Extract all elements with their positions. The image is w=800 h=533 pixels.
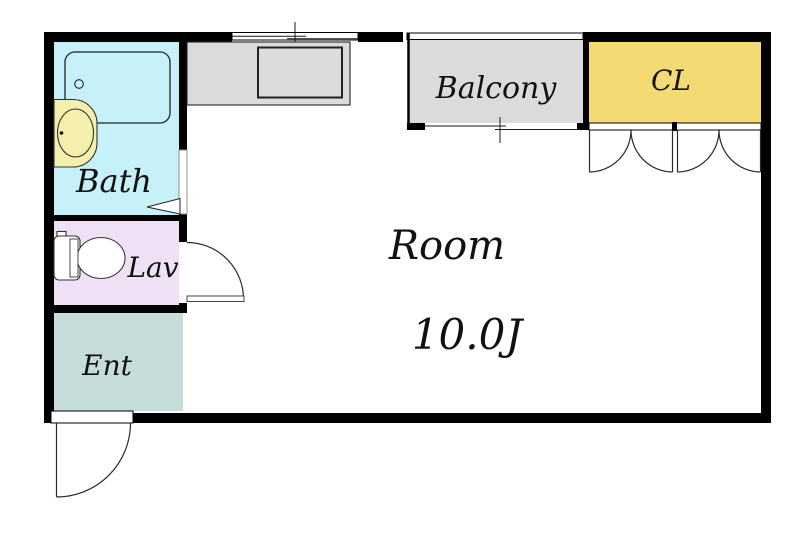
ent-label: Ent bbox=[81, 349, 132, 382]
wall-right bbox=[761, 32, 771, 423]
lav-bottom-wall bbox=[44, 305, 187, 313]
wall-left bbox=[44, 32, 54, 423]
balcony-sill-left-seg bbox=[407, 123, 425, 130]
lav-door-leaf bbox=[187, 296, 244, 302]
balcony-sill-right-seg bbox=[577, 123, 583, 130]
lav-door bbox=[179, 242, 244, 303]
floor-plan: Bath Lav Ent Balcony CL Room 10.0J bbox=[0, 0, 800, 533]
closet-label: CL bbox=[651, 64, 691, 97]
lav-door-arc bbox=[187, 243, 244, 300]
closet-door-arc-1 bbox=[590, 130, 632, 172]
entrance-door-frame bbox=[51, 411, 133, 423]
bath-label: Bath bbox=[75, 162, 152, 200]
entrance-door-arc bbox=[57, 423, 131, 497]
toilet-bowl bbox=[77, 238, 125, 279]
bath-right-wall-upper bbox=[179, 42, 187, 150]
closet-left-wall bbox=[583, 32, 589, 130]
closet-door-arc-4 bbox=[719, 130, 761, 172]
wall-bottom-left-segment bbox=[44, 413, 51, 423]
wall-top-left-segment bbox=[44, 32, 232, 42]
wall-bottom-main-segment bbox=[133, 413, 771, 423]
balcony-top-rail bbox=[407, 33, 583, 40]
bathtub-drain bbox=[75, 80, 84, 89]
entrance-door bbox=[51, 411, 133, 497]
closet-door-arc-2 bbox=[631, 130, 673, 172]
wall-top-mid-segment bbox=[358, 32, 403, 42]
closet-doors bbox=[589, 122, 761, 172]
balcony-label: Balcony bbox=[435, 71, 558, 106]
kitchen-counter-sink-icon bbox=[187, 42, 350, 105]
lav-door-opening bbox=[179, 242, 187, 303]
closet-door-divider bbox=[672, 122, 677, 131]
bath-bottom-wall bbox=[44, 215, 187, 221]
wall-top-right-segment bbox=[583, 32, 771, 42]
washbasin-icon bbox=[54, 100, 97, 168]
room-size-label: 10.0J bbox=[412, 310, 525, 359]
washbasin-faucet-dot bbox=[60, 131, 64, 135]
lav-label: Lav bbox=[126, 251, 178, 284]
toilet-seat-hinge bbox=[70, 239, 78, 277]
closet-door-arc-3 bbox=[678, 130, 720, 172]
room-label: Room bbox=[388, 223, 505, 269]
kitchen-sink bbox=[258, 48, 342, 98]
